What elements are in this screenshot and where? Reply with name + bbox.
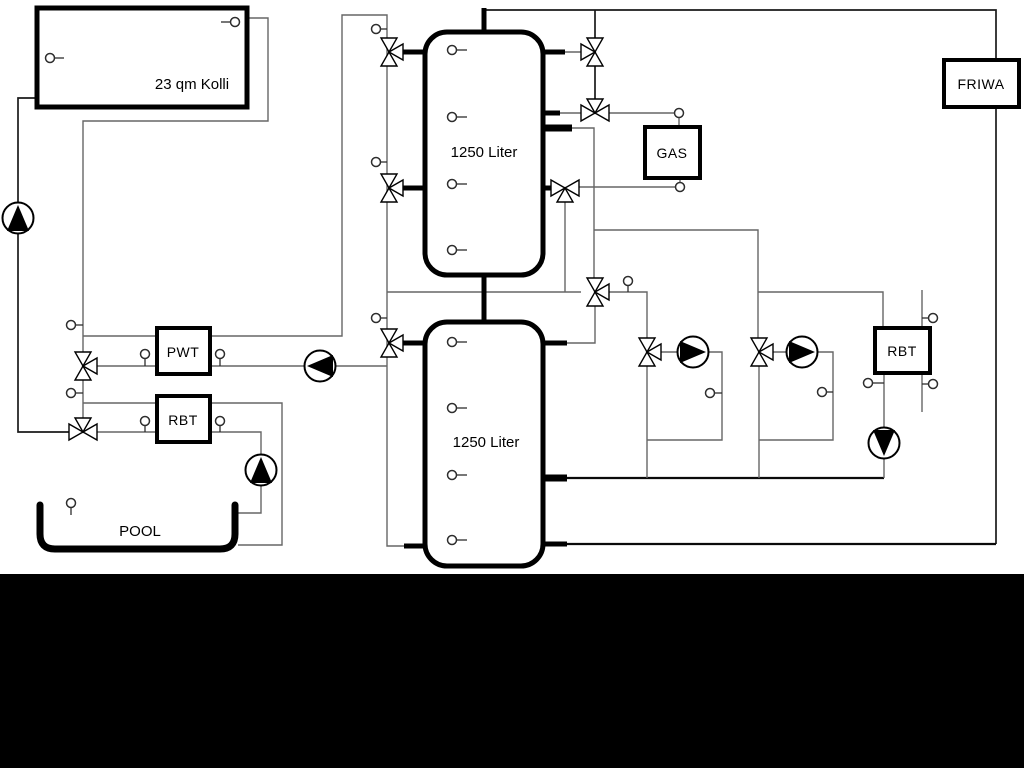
tank2-label: 1250 Liter [453, 434, 520, 451]
schematic-svg: 23 qm Kolli 1250 Liter 1250 Liter GAS FR… [0, 0, 1024, 768]
valve-solar-pool [69, 418, 97, 440]
sensor-gas-top [675, 109, 684, 118]
pipe-distribution [572, 128, 883, 338]
pipe-pool-supply-line [97, 432, 261, 513]
sensor-gas-bottom [676, 183, 685, 192]
sensor-mixing-2 [818, 388, 834, 397]
sensor-valve-d [372, 158, 388, 167]
pump-mixing-1 [678, 337, 709, 368]
valve-tank1-top-right [581, 38, 603, 66]
valve-gas-supply [581, 99, 609, 121]
sensor-rbt-left-1 [141, 417, 150, 433]
sensor-pwt-right [216, 350, 225, 367]
sensor-valve-b [67, 389, 84, 398]
tank1-label: 1250 Liter [451, 144, 518, 161]
collector-label: 23 qm Kolli [155, 76, 229, 93]
pipe-collector-return [18, 98, 69, 432]
valve-mixing-1 [639, 338, 661, 366]
pipe-gas-supply [609, 113, 679, 127]
pool-label: POOL [119, 523, 161, 540]
valve-distribution [587, 278, 609, 306]
pump-pwt-secondary [305, 351, 336, 382]
valve-tank2-charge-top [381, 329, 403, 357]
pump-rbt-right [869, 428, 900, 459]
pipe-valve-i-to-tank2 [567, 306, 595, 343]
sensor-mixing-1 [706, 389, 723, 398]
schematic-canvas: 23 qm Kolli 1250 Liter 1250 Liter GAS FR… [0, 0, 1024, 768]
valve-gas-return [551, 180, 579, 202]
friwa-label: FRIWA [957, 76, 1004, 92]
rbt-right-label: RBT [887, 343, 917, 359]
pipe-top-header [484, 10, 996, 544]
sensor-rbt-left-2 [216, 417, 225, 433]
pwt-label: PWT [167, 344, 200, 360]
sensor-pwt-left [141, 350, 150, 367]
sensor-valve-a [67, 321, 84, 330]
sensor-rbt-secondary-top [922, 314, 938, 323]
pump-collector [3, 203, 34, 234]
valve-mixing-2 [751, 338, 773, 366]
sensor-rbt-right-out [864, 379, 885, 388]
pipe-valve-i-to-j [609, 292, 647, 338]
valve-solar-pwt [75, 352, 97, 380]
pipe-mixing1-loop [647, 352, 722, 478]
sensor-valve-e [372, 314, 388, 323]
rbt-left-label: RBT [168, 412, 198, 428]
pipe-mixing2-loop [759, 352, 833, 478]
sensor-valve-i [624, 277, 633, 293]
valve-tank1-charge-mid [381, 174, 403, 202]
pump-mixing-2 [787, 337, 818, 368]
sensor-pool [67, 499, 76, 516]
sensor-rbt-secondary-bottom [922, 380, 938, 389]
footer-black-band [0, 574, 1024, 768]
gas-label: GAS [656, 145, 687, 161]
sensor-valve-c [372, 25, 388, 34]
valve-tank1-charge-top [381, 38, 403, 66]
pump-pool [246, 455, 277, 486]
pipe-tank1-stub-links [560, 52, 581, 113]
